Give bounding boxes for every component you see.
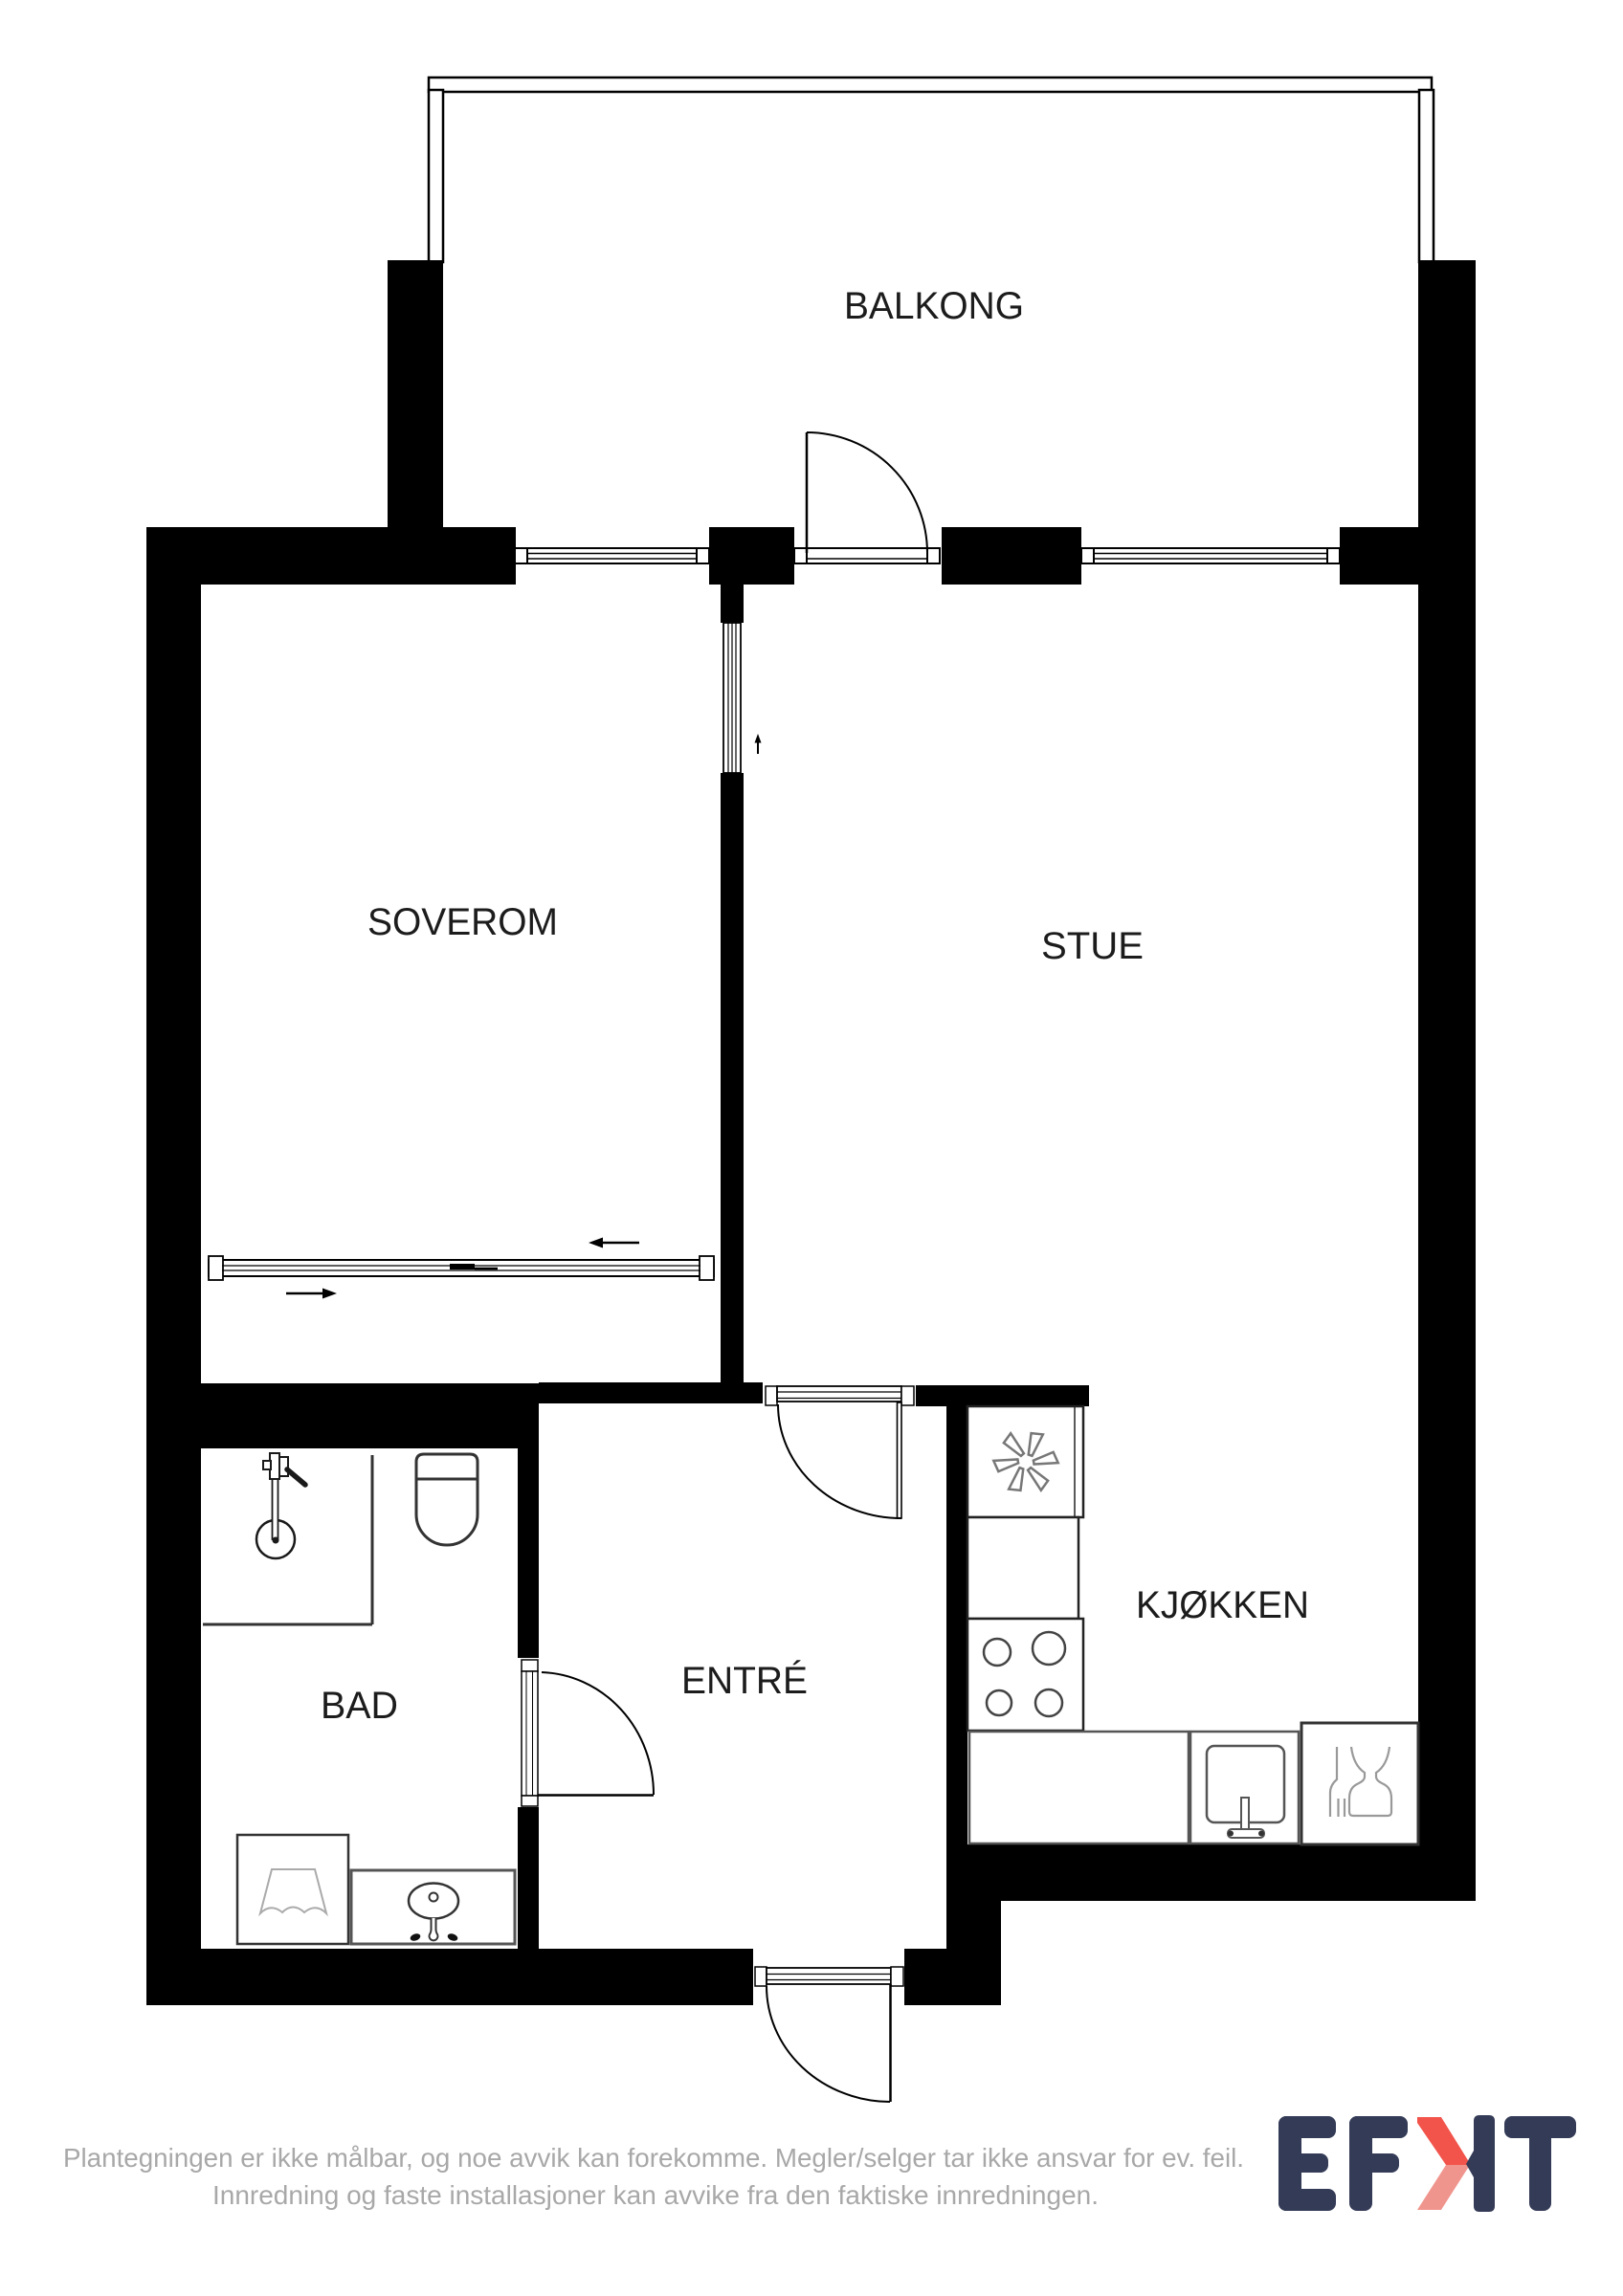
svg-text:ENTRÉ: ENTRÉ (681, 1659, 808, 1702)
svg-text:Innredning og faste installasj: Innredning og faste installasjoner kan a… (212, 2180, 1099, 2210)
svg-text:Plantegningen er ikke målbar,: Plantegningen er ikke målbar, og noe avv… (63, 2143, 1244, 2173)
svg-text:BAD: BAD (321, 1685, 398, 1727)
svg-text:SOVEROM: SOVEROM (367, 901, 558, 943)
svg-text:BALKONG: BALKONG (844, 285, 1024, 327)
svg-text:KJØKKEN: KJØKKEN (1136, 1584, 1309, 1626)
svg-text:STUE: STUE (1041, 925, 1144, 967)
